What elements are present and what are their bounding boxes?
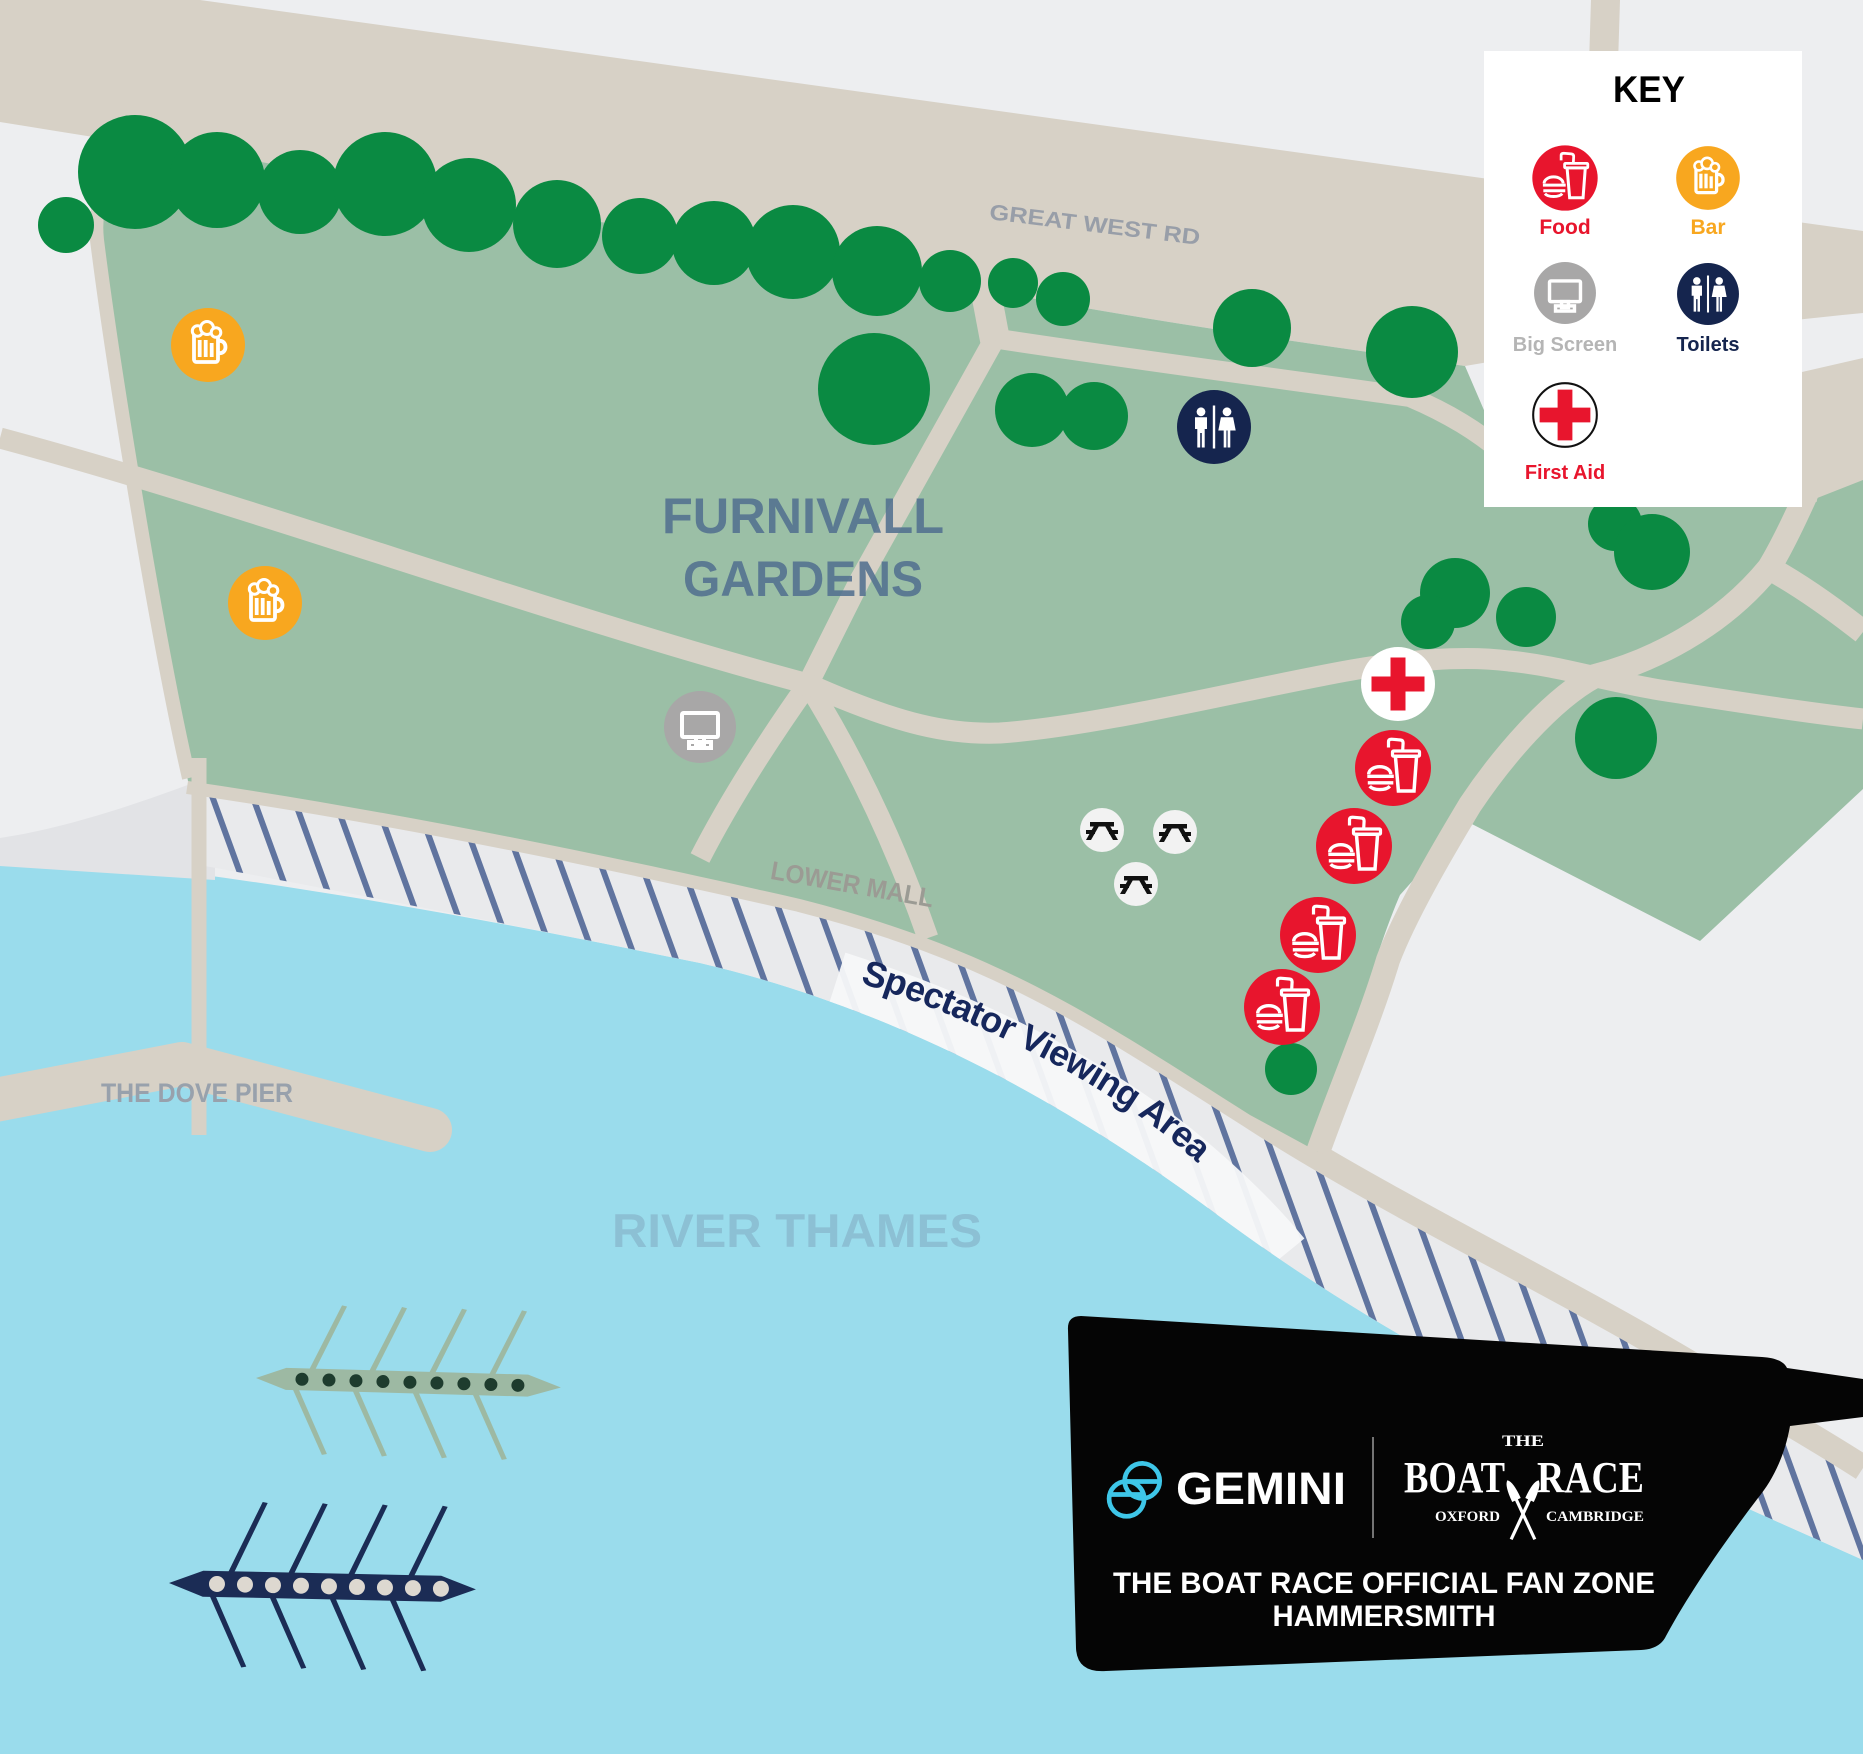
svg-text:Big Screen: Big Screen: [1513, 334, 1617, 356]
svg-text:FURNIVALL: FURNIVALL: [662, 488, 944, 544]
svg-text:RIVER THAMES: RIVER THAMES: [612, 1204, 982, 1257]
svg-text:THE DOVE PIER: THE DOVE PIER: [101, 1078, 293, 1108]
svg-text:CAMBRIDGE: CAMBRIDGE: [1546, 1509, 1644, 1525]
svg-text:GARDENS: GARDENS: [683, 551, 923, 607]
svg-text:KEY: KEY: [1613, 69, 1685, 110]
svg-text:GEMINI: GEMINI: [1176, 1463, 1346, 1514]
svg-text:THE: THE: [1502, 1433, 1544, 1450]
svg-text:Toilets: Toilets: [1677, 334, 1740, 356]
svg-text:THE BOAT RACE OFFICIAL FAN ZON: THE BOAT RACE OFFICIAL FAN ZONE: [1113, 1567, 1655, 1600]
svg-text:RACE: RACE: [1537, 1453, 1644, 1502]
svg-text:Food: Food: [1539, 216, 1590, 239]
svg-text:Bar: Bar: [1690, 216, 1725, 239]
svg-text:HAMMERSMITH: HAMMERSMITH: [1273, 1600, 1496, 1633]
svg-text:BOAT: BOAT: [1404, 1453, 1505, 1502]
svg-text:First Aid: First Aid: [1525, 462, 1605, 484]
svg-text:OXFORD: OXFORD: [1435, 1509, 1500, 1525]
